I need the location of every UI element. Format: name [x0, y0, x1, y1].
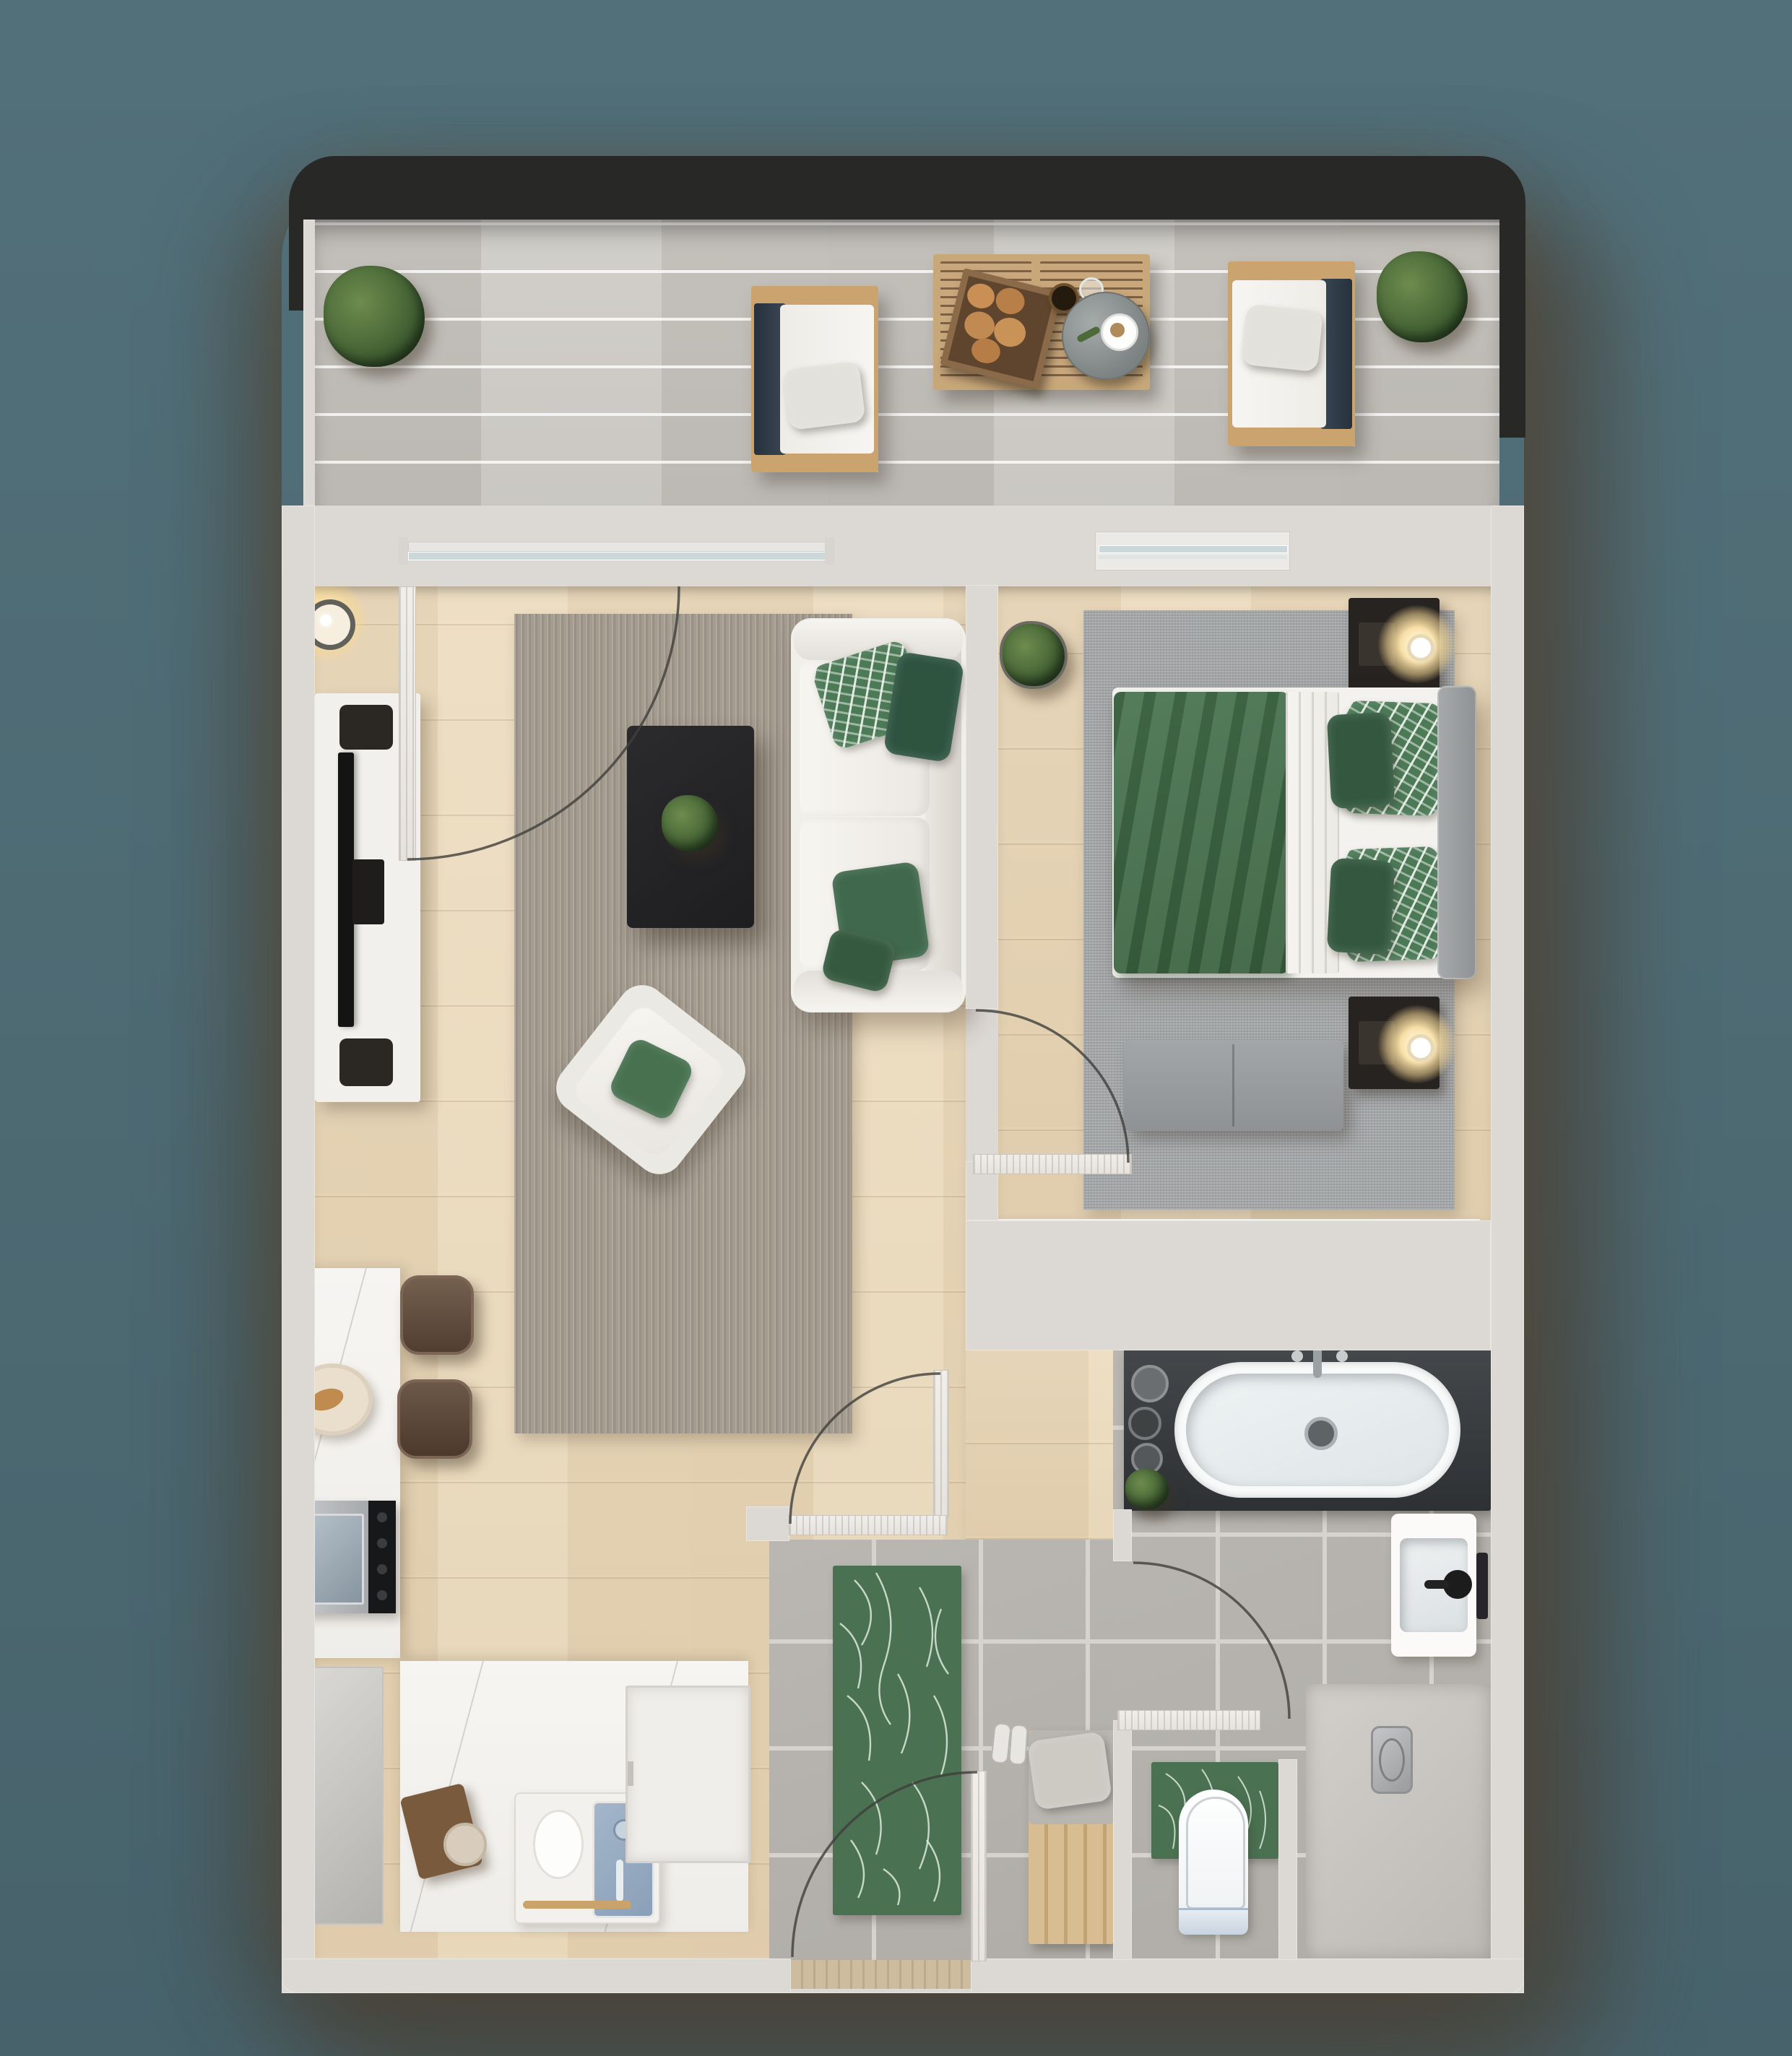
sofa: [791, 618, 966, 1012]
bathtub: [1174, 1362, 1460, 1498]
slider-glass: [408, 552, 826, 560]
knob: [377, 1538, 387, 1548]
cooktop: [368, 1501, 396, 1613]
sink-faucet: [616, 1860, 623, 1901]
coffee-table-plant: [662, 795, 718, 851]
toilet: [1179, 1790, 1248, 1933]
dishwasher: [626, 1686, 750, 1863]
bench-seam: [1232, 1044, 1234, 1127]
knob: [377, 1564, 387, 1574]
entry-threshold: [791, 1960, 971, 1989]
knob: [377, 1590, 387, 1600]
hall-rug-pattern: [833, 1566, 961, 1915]
faucet-handle: [1336, 1350, 1348, 1362]
bed-duvet: [1114, 692, 1289, 973]
nightstand-lamp-top: [1378, 605, 1456, 683]
basin-spout: [1424, 1580, 1449, 1589]
bottom-wall-left: [282, 1959, 791, 1993]
bed: [1112, 687, 1475, 978]
hallway-door-leaf: [789, 1515, 948, 1535]
towel-bar: [1476, 1553, 1488, 1619]
balcony-plant-right: [1377, 251, 1468, 342]
drain-swirl: [1379, 1738, 1405, 1782]
lounge-chair-left: [751, 286, 878, 472]
entry-bench: [1029, 1730, 1114, 1944]
faucet-handle: [1291, 1350, 1303, 1362]
toilet-cistern: [1179, 1908, 1248, 1935]
speaker-bottom: [339, 1038, 393, 1086]
chair-pillow: [1241, 304, 1323, 373]
bathtub-drain: [1304, 1417, 1338, 1450]
serving-tray: [1062, 292, 1150, 380]
hall-stub-wall: [746, 1506, 789, 1541]
hall-upper-floor: [966, 1350, 1113, 1540]
room-balcony: [282, 152, 1531, 513]
lamp-bulb: [1407, 634, 1434, 662]
bed-pillow-green-2: [1327, 858, 1395, 955]
wash-basin: [1391, 1514, 1476, 1657]
lamp-bulb: [320, 615, 332, 626]
left-wall: [282, 506, 315, 1993]
coffee-cup: [1101, 313, 1138, 351]
slider-cap: [825, 537, 835, 565]
small-plate: [443, 1823, 487, 1866]
speaker-top: [339, 705, 393, 750]
coffee-table: [627, 726, 754, 928]
bedroom-window: [1095, 532, 1290, 571]
gold-utensil: [523, 1901, 631, 1909]
bed-bench: [1124, 1040, 1343, 1131]
bar-stool-2: [397, 1379, 472, 1459]
bread: [993, 285, 1028, 318]
chair-pillow: [782, 361, 865, 430]
bottom-wall-right: [971, 1959, 1524, 1993]
balcony-railing: [289, 156, 1525, 220]
sneakers: [992, 1723, 1027, 1764]
tv-mount: [352, 859, 384, 924]
bathroom-door-leaf: [1117, 1710, 1260, 1730]
tv: [338, 752, 354, 1027]
toiletry-bottle: [1131, 1365, 1169, 1402]
balcony-slider-glass: [408, 537, 825, 565]
nightstand-lamp-bottom: [1378, 1005, 1456, 1083]
balcony-railing-right: [1499, 209, 1525, 438]
bar-stool-1: [400, 1275, 474, 1355]
balcony-plant-left: [324, 266, 425, 367]
bed-pillow-green-1: [1327, 712, 1395, 809]
window-glass: [1099, 555, 1286, 559]
divider-wall-upper: [966, 585, 998, 1009]
right-wall: [1491, 506, 1524, 1993]
lamp-bulb: [1407, 1034, 1434, 1062]
bread: [965, 281, 997, 311]
toilet-seat-line: [1186, 1797, 1245, 1909]
slider-cap: [398, 537, 408, 565]
bread: [961, 308, 997, 342]
slider-rail: [408, 542, 826, 552]
floor-plan: [0, 0, 1792, 2056]
bedroom-plant: [1000, 621, 1068, 689]
balcony-table: [933, 254, 1150, 390]
shower-drain: [1371, 1726, 1413, 1794]
toilet-partition-wall: [1278, 1759, 1297, 1960]
bathroom-wall-upper: [1113, 1509, 1132, 1561]
bed-headboard: [1437, 686, 1476, 979]
sprig: [1076, 326, 1101, 344]
bathroom-plant: [1125, 1469, 1169, 1509]
lounge-chair-right: [1228, 261, 1355, 446]
basin-left: [533, 1810, 584, 1879]
faucet-spout: [1313, 1346, 1322, 1378]
hall-runner-rug: [833, 1566, 961, 1915]
wardrobe-back-wall: [966, 1220, 1491, 1350]
bench-pillow: [1027, 1731, 1112, 1810]
window-glass: [1099, 545, 1288, 553]
knob: [377, 1512, 387, 1522]
coffee: [1110, 323, 1125, 337]
bathroom-wall-lower: [1113, 1720, 1132, 1960]
dishwasher-handle: [628, 1761, 633, 1786]
hall-door-jamb: [933, 1370, 949, 1518]
balcony-door-leaf: [399, 586, 416, 861]
toiletry-bottle: [1128, 1407, 1161, 1440]
entry-door-leaf: [971, 1771, 987, 1961]
sneaker: [1008, 1724, 1029, 1766]
bedroom-door-leaf: [973, 1154, 1132, 1174]
